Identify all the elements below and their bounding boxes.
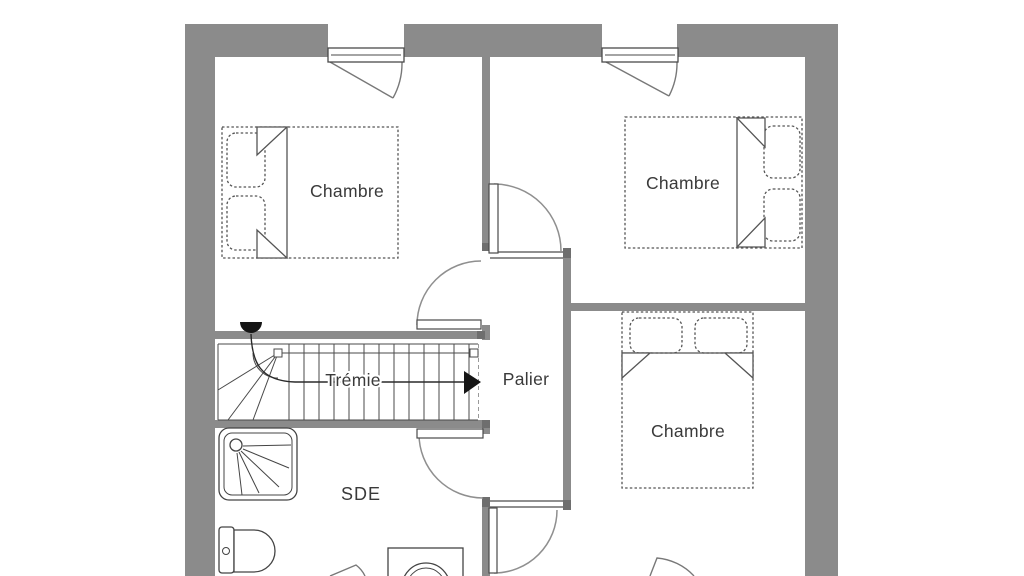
jamb	[563, 248, 571, 258]
window-swing	[330, 62, 402, 98]
label-bedroom1: Chambre	[310, 181, 384, 201]
floor-plan-drawing: Chambre Chambre Chambre Trémie Palier SD…	[0, 0, 1024, 576]
wall-left-exterior	[185, 24, 215, 576]
bed-bedroom3	[622, 312, 753, 488]
wall-landing-right	[563, 248, 571, 510]
pillow	[630, 318, 682, 353]
blanket-corner	[257, 127, 287, 155]
shower-drain	[230, 439, 242, 451]
jamb	[563, 500, 571, 510]
window-bedroom1	[328, 48, 404, 98]
sde-door-leaf	[417, 429, 483, 438]
washer-body	[388, 548, 463, 576]
wall-right-exterior	[805, 24, 838, 576]
landing-bottom-opening	[490, 501, 563, 507]
wall-divider-right-bedrooms	[567, 303, 805, 311]
cut-door-bedroom3	[650, 558, 694, 576]
stair-winder-treads	[218, 353, 278, 420]
wall-stair-top	[215, 331, 485, 339]
stair-newel-post-right	[470, 349, 478, 357]
bedroom1-door-leaf	[417, 320, 481, 329]
label-stairwell: Trémie	[325, 370, 381, 390]
cut-door-bottom-center	[330, 565, 365, 576]
wall-top-exterior-middle	[404, 24, 602, 57]
floor-plan-page: Chambre Chambre Chambre Trémie Palier SD…	[0, 0, 1024, 576]
landing-top-opening	[490, 252, 563, 258]
jamb	[477, 331, 485, 339]
pillow	[764, 189, 800, 241]
toilet	[219, 527, 275, 573]
label-bedroom2: Chambre	[646, 173, 720, 193]
wall-stair-bottom	[215, 420, 490, 428]
window-swing	[606, 62, 677, 96]
shower-tray	[219, 428, 297, 500]
bedroom2-door-arc	[494, 184, 561, 251]
bedroom2-door-leaf	[489, 184, 498, 253]
blanket-corner	[725, 353, 753, 378]
blanket-corner	[737, 218, 765, 247]
landing-bottom-door-arc	[494, 510, 557, 573]
blanket-corner	[622, 353, 650, 378]
washing-machine	[388, 548, 463, 576]
toilet-flush-button	[223, 548, 230, 555]
bedroom1-door-arc	[417, 261, 481, 325]
blanket-corner	[737, 118, 765, 147]
stair-newel-post-left	[274, 349, 282, 357]
jamb	[482, 497, 490, 507]
toilet-bowl	[234, 530, 275, 572]
window-bedroom2	[602, 48, 678, 96]
label-bedroom3: Chambre	[651, 421, 725, 441]
pillow	[764, 126, 800, 178]
sde-door-arc	[419, 434, 483, 498]
landing-bottom-door-leaf	[489, 508, 497, 573]
label-landing: Palier	[503, 369, 550, 389]
wall-top-exterior-left	[185, 24, 328, 57]
jamb	[482, 420, 490, 428]
label-shower-room: SDE	[341, 484, 381, 504]
shower-outline	[219, 428, 297, 500]
pillow	[695, 318, 747, 353]
bed-outline	[622, 312, 753, 488]
blanket-corner	[257, 230, 287, 258]
